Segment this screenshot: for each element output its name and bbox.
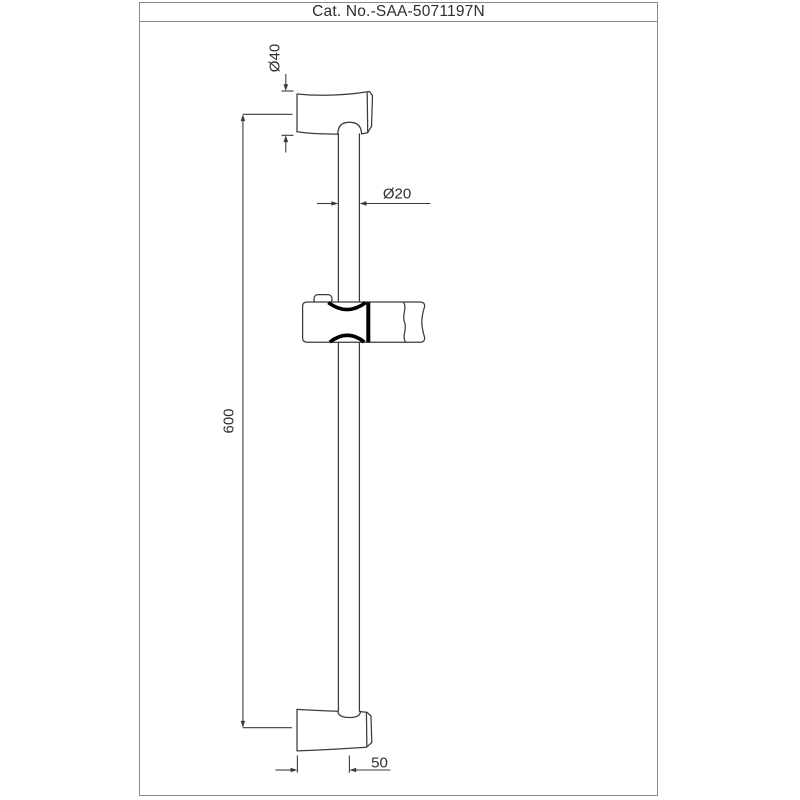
holder-body — [303, 302, 425, 342]
dim-rail-diameter: Ø20 — [317, 186, 431, 206]
top-bracket-bottom-edge — [297, 132, 338, 134]
top-bracket-lip-line — [367, 93, 368, 133]
arrowhead-left — [349, 768, 356, 772]
rail-bottom-dome — [338, 711, 361, 718]
dim-label-rail-diameter: Ø20 — [383, 186, 411, 203]
dim-label-rail-length: 600 — [221, 408, 238, 433]
arrowhead-right — [291, 768, 298, 772]
arrowhead-up — [284, 135, 289, 142]
drawing-sheet: Cat. No.-SAA-5071197N — [0, 0, 800, 800]
top-bracket-outline — [297, 92, 373, 134]
dim-label-wall-offset: 50 — [371, 755, 388, 772]
arrowhead-left — [360, 201, 367, 205]
dim-rail-length: 600 — [221, 114, 293, 727]
bottom-bracket-lip-line — [366, 712, 367, 747]
dim-wall-offset: 50 — [276, 755, 391, 773]
rail-top-dome — [338, 122, 362, 134]
bottom-wall-bracket — [297, 709, 372, 751]
arrowhead-right — [331, 201, 338, 205]
arrowhead-up — [241, 114, 245, 121]
top-wall-bracket — [297, 92, 373, 135]
arrowhead-down — [241, 721, 245, 728]
arrowhead-down — [284, 84, 289, 91]
dim-label-bracket-diameter: Ø40 — [267, 44, 284, 72]
dim-bracket-diameter: Ø40 — [267, 44, 294, 153]
bottom-bracket-outline — [297, 709, 372, 751]
slider-holder — [303, 295, 425, 343]
shower-rail — [338, 134, 359, 711]
technical-drawing: Ø40 Ø20 600 50 — [0, 0, 800, 800]
